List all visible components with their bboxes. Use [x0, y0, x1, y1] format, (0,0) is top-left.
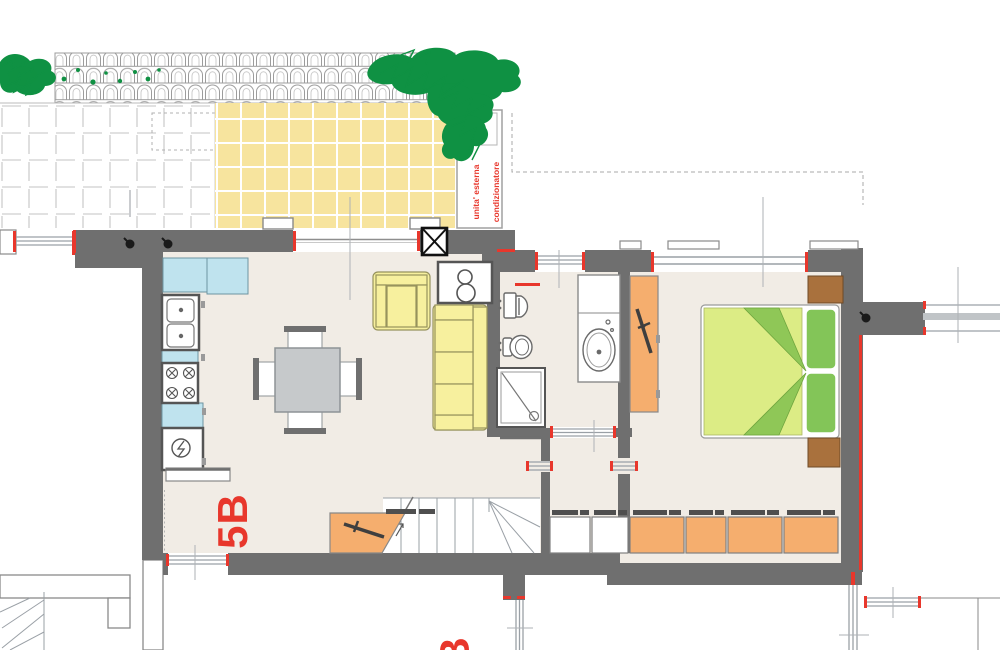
pillow — [806, 309, 836, 369]
pillow — [806, 373, 836, 433]
dining-table — [275, 348, 340, 412]
adjacent-unit-outline — [0, 560, 163, 650]
chair — [284, 326, 326, 348]
sofa — [433, 305, 487, 430]
wardrobe-unit — [630, 517, 684, 553]
floor-plan-drawing — [0, 0, 1000, 650]
kitchen-stove — [162, 363, 198, 403]
kitchen-counter — [162, 403, 203, 428]
floor-plan: 5B 4B unita' esterna condizionatore — [0, 0, 1000, 650]
sofa-cushion — [435, 352, 473, 384]
sofa-cushion — [435, 384, 473, 415]
kitchen-counter — [163, 258, 207, 292]
right-side-window — [923, 267, 1000, 343]
right-lower-window — [839, 585, 869, 650]
chair — [253, 358, 275, 400]
chair — [340, 358, 362, 400]
shower — [497, 368, 545, 427]
nightstand — [808, 438, 840, 467]
nightstand — [808, 276, 843, 303]
wardrobe-unit — [686, 517, 726, 553]
hallway-cabinets — [550, 510, 628, 553]
shutter-boxes — [620, 241, 858, 249]
entry-door-lines — [507, 600, 533, 650]
chair — [284, 412, 326, 434]
bed — [701, 305, 839, 438]
yellow-tiled-terrace — [215, 103, 455, 228]
sofa-cushion — [435, 320, 473, 352]
armchair — [373, 272, 430, 330]
kitchen-counter — [162, 350, 198, 363]
threshold-step — [263, 218, 293, 229]
radiator-shelf — [166, 468, 230, 481]
terrace-wall-window — [0, 230, 73, 254]
stairs — [381, 497, 540, 553]
ac-x-box-symbol — [422, 228, 447, 255]
wardrobe-unit — [728, 517, 782, 553]
washbasin — [578, 275, 620, 382]
wardrobe-unit — [784, 517, 838, 553]
kitchen-sink — [162, 295, 199, 350]
bidet — [499, 336, 532, 359]
dashed-roof-line — [512, 113, 863, 205]
island-unit — [438, 262, 492, 303]
bedroom-wardrobe-left — [630, 276, 660, 412]
adjacent-stairs — [0, 592, 44, 650]
kitchen-counter — [207, 258, 248, 294]
bottom-right-window — [866, 587, 1000, 650]
washing-machine — [162, 428, 203, 470]
